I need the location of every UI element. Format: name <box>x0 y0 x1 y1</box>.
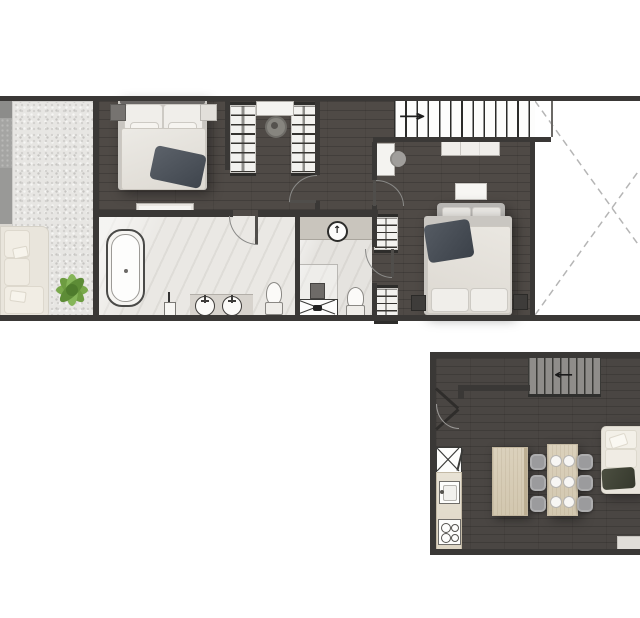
stair-up-arrow-icon: → <box>398 109 426 124</box>
bedroom1-nightstand-left <box>110 104 126 121</box>
closet-wardrobe-left <box>230 102 256 176</box>
place-setting <box>563 455 575 467</box>
bedroom2-bed <box>424 216 512 315</box>
bedroom1-bed <box>118 98 207 190</box>
tray-center-mark <box>313 305 322 311</box>
lower-wall-bottom <box>430 549 640 555</box>
upper-floor-plan: → <box>0 96 640 321</box>
wall-terrace <box>93 96 99 315</box>
bedroom2-media-unit <box>455 183 487 200</box>
shower-arrow-glyph: ↑ <box>333 226 341 236</box>
wall-bedroom2-east <box>530 142 535 315</box>
left-panel-dark <box>0 101 12 118</box>
stand-post <box>168 292 170 302</box>
lower-wall-interior <box>460 385 530 391</box>
corner-sofa <box>0 226 49 317</box>
bed2-throw-dark <box>423 219 474 264</box>
burner <box>451 524 459 532</box>
burner <box>441 533 451 543</box>
wall-corridor-right <box>258 210 378 217</box>
floorplan-canvas: → <box>0 0 640 618</box>
wall-bath-shower <box>295 217 300 315</box>
wall-shower-bedroom2-b <box>372 283 377 321</box>
left-panel-gray <box>0 168 12 224</box>
closet-dressing-table <box>256 101 294 116</box>
wall-bedroom1-closet <box>225 96 230 170</box>
bathroom-toilet <box>265 282 283 315</box>
stand-base <box>164 302 176 316</box>
sink-tap <box>440 490 444 494</box>
stool-center <box>271 122 278 129</box>
wall-bedroom2-west <box>372 142 377 180</box>
closet-stool <box>265 116 287 138</box>
sofa-pillow <box>9 290 26 303</box>
towel-stand <box>164 292 174 314</box>
shower-room-toilet <box>346 287 365 317</box>
wall-bedroom2-west-stub <box>372 205 377 217</box>
wall-bottom <box>0 315 640 321</box>
bathtub-inner <box>111 234 140 302</box>
bathtub <box>106 229 145 307</box>
kitchen-sink <box>439 481 460 504</box>
stair-edge-line <box>551 101 553 137</box>
dining-chair <box>577 475 593 491</box>
place-setting <box>550 455 562 467</box>
shower-drain <box>310 283 325 299</box>
dining-chair <box>530 496 546 512</box>
bedroom2-nightstand-right <box>513 294 528 310</box>
sofa-cushion <box>605 449 637 468</box>
bed2-pillow <box>470 288 508 312</box>
round-sink-icon <box>222 296 242 316</box>
bed2-pillow <box>431 288 469 312</box>
lower-wall-jog <box>458 385 464 399</box>
lower-sofa <box>601 426 640 494</box>
place-setting <box>563 496 575 508</box>
place-setting <box>550 476 562 488</box>
lower-floor-plan: ← <box>430 352 640 555</box>
sofa-olive-throw <box>601 467 635 490</box>
round-sink-icon <box>195 296 215 316</box>
bedroom2-desk-chair <box>390 151 406 167</box>
place-setting <box>550 496 562 508</box>
dining-chair <box>530 475 546 491</box>
burner <box>441 523 451 533</box>
dining-chair <box>577 454 593 470</box>
dining-chair <box>577 496 593 512</box>
closet-wardrobe-right <box>291 102 316 176</box>
bedroom1-nightstand-right <box>200 104 217 121</box>
shower-symbol-icon: ↑ <box>327 221 348 242</box>
wall-closet-hallway <box>315 96 320 175</box>
console-unit <box>617 536 640 550</box>
lower-wall-left <box>430 352 436 555</box>
place-setting <box>563 476 575 488</box>
left-panel-speckled <box>0 118 12 168</box>
potted-plant <box>53 270 91 310</box>
bathtub-drain <box>124 269 128 273</box>
lower-wall-top <box>430 352 640 358</box>
bedroom2-wardrobe-top <box>374 214 398 253</box>
kitchen-island <box>492 447 528 516</box>
dining-chair <box>530 454 546 470</box>
sink-basin <box>443 485 457 501</box>
cooktop <box>438 519 461 545</box>
burner <box>451 534 459 542</box>
bedroom2-nightstand-left <box>411 295 426 311</box>
wall-under-stairs <box>373 137 551 142</box>
wall-corridor-left <box>99 210 233 217</box>
sofa-cushion <box>4 258 30 286</box>
wall-shower-bedroom2-a <box>372 217 377 247</box>
stair-down-arrow-icon: ← <box>554 369 574 382</box>
